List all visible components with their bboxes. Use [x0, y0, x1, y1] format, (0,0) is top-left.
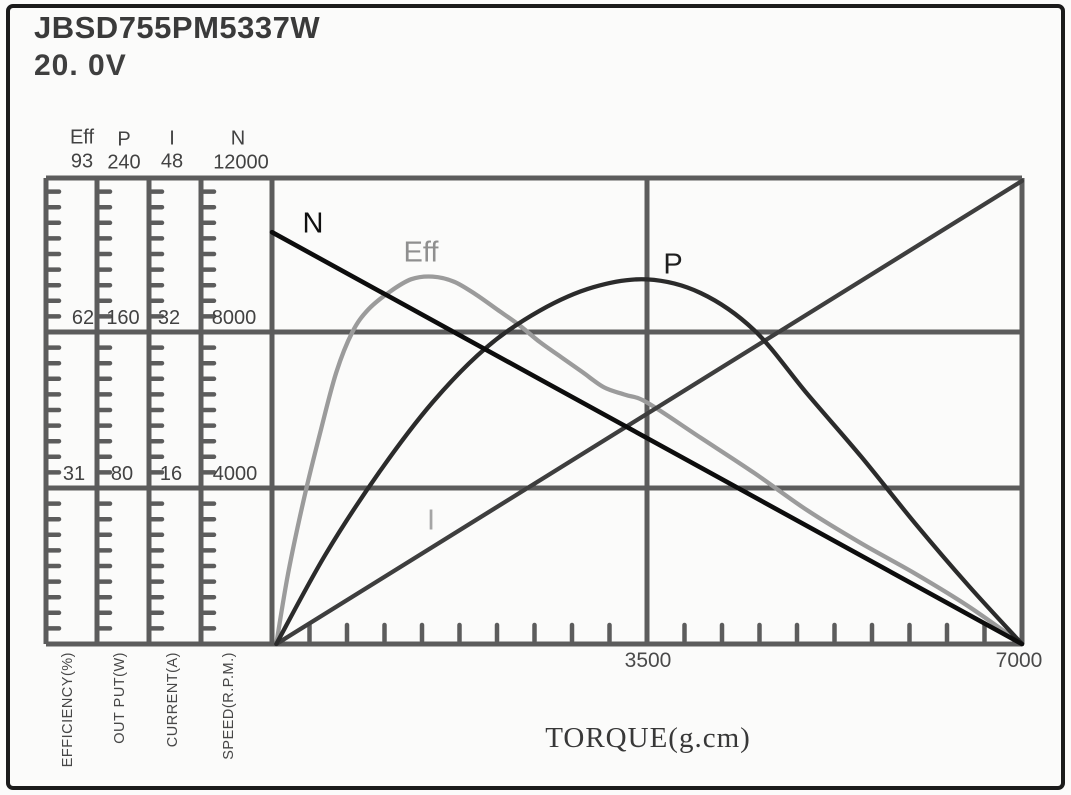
- y-axis-unit-efficiency: EFFICIENCY(%): [60, 652, 76, 767]
- x-axis-tick-3500: 3500: [625, 649, 672, 673]
- y-axis-max-n: 12000: [213, 152, 269, 175]
- y-axis-mid-n: 8000: [212, 307, 257, 331]
- y-axis-max-i: 48: [161, 151, 183, 174]
- curve-chart-canvas: [0, 0, 1071, 795]
- curve-label-power: P: [663, 249, 682, 282]
- curve-label-speed: N: [303, 208, 324, 241]
- y-axis-low-p: 80: [111, 463, 133, 487]
- y-axis-header-n: N: [231, 128, 245, 151]
- y-axis-header-i: I: [169, 128, 175, 151]
- x-axis-title: TORQUE(g.cm): [545, 722, 751, 755]
- curve-label-efficiency: Eff: [404, 237, 439, 270]
- motor-performance-chart-page: JBSD755PM5337W 20. 0V Eff P I N 93 240 4…: [0, 0, 1071, 795]
- y-axis-unit-current: CURRENT(A): [165, 652, 181, 747]
- y-axis-unit-output: OUT PUT(W): [112, 652, 128, 744]
- y-axis-header-eff: Eff: [70, 127, 94, 150]
- y-axis-low-eff: 31: [63, 463, 85, 487]
- y-axis-header-p: P: [117, 129, 130, 152]
- y-axis-mid-i: 32: [158, 307, 180, 331]
- y-axis-max-eff: 93: [71, 151, 93, 174]
- grid-lines: [46, 178, 1022, 644]
- y-axis-mid-p: 160: [106, 307, 139, 331]
- curve-label-current: I: [427, 505, 435, 538]
- x-axis-tick-7000: 7000: [996, 649, 1043, 673]
- y-axis-low-i: 16: [160, 463, 182, 487]
- y-axis-unit-speed: SPEED(R.P.M.): [221, 652, 237, 760]
- axis-tick-marks: [46, 192, 985, 641]
- y-axis-low-n: 4000: [213, 463, 258, 487]
- y-axis-mid-eff: 62: [72, 307, 94, 331]
- y-axis-max-p: 240: [107, 152, 140, 175]
